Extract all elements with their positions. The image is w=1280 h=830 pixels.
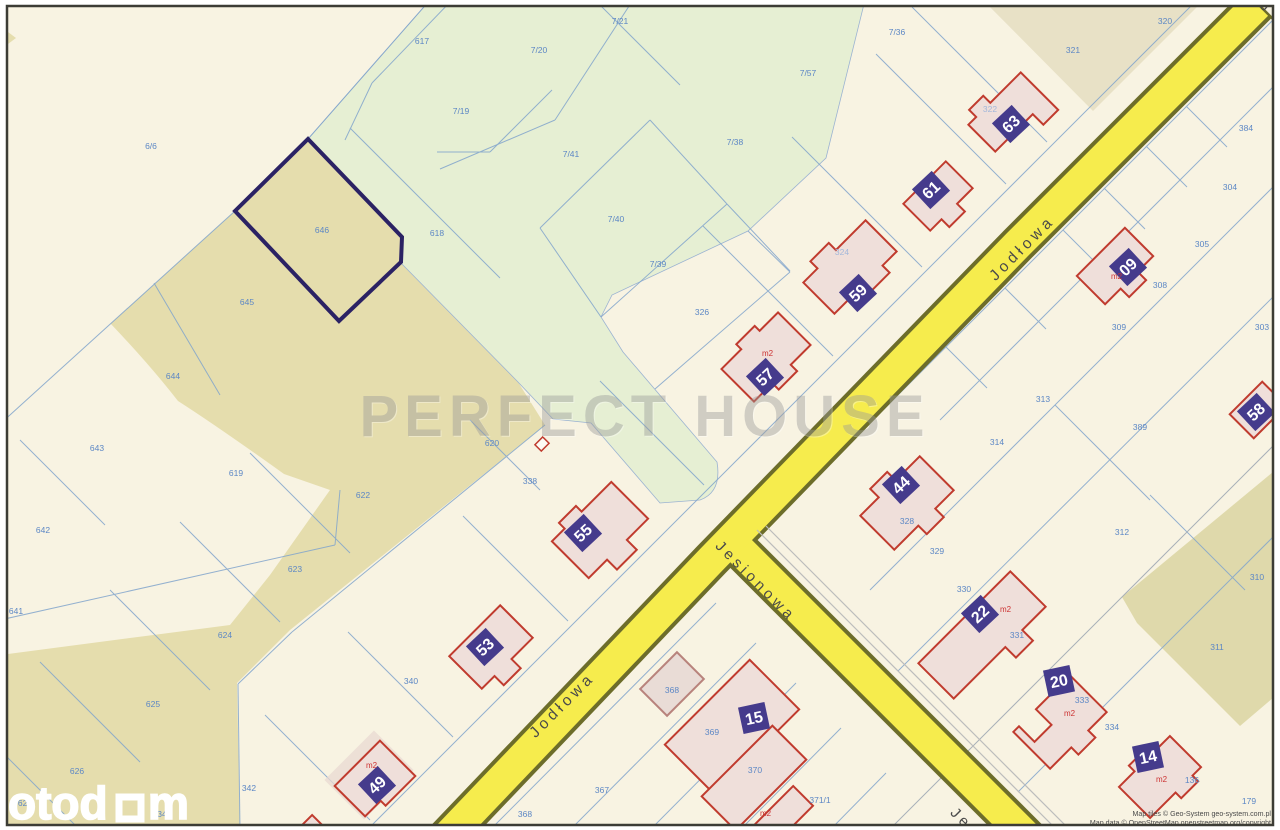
- svg-text:313: 313: [1036, 394, 1050, 404]
- svg-text:368: 368: [518, 809, 532, 819]
- svg-text:326: 326: [695, 307, 709, 317]
- svg-text:7/38: 7/38: [727, 137, 744, 147]
- svg-text:644: 644: [166, 371, 180, 381]
- svg-text:7/39: 7/39: [650, 259, 667, 269]
- svg-text:624: 624: [218, 630, 232, 640]
- svg-text:311: 311: [1210, 642, 1224, 652]
- svg-text:7/19: 7/19: [453, 106, 470, 116]
- svg-text:329: 329: [930, 546, 944, 556]
- svg-text:328: 328: [900, 516, 914, 526]
- svg-text:7/40: 7/40: [608, 214, 625, 224]
- svg-text:384: 384: [1239, 123, 1253, 133]
- svg-text:370: 370: [748, 765, 762, 775]
- svg-text:14: 14: [1138, 748, 1159, 768]
- svg-text:322: 322: [983, 104, 997, 114]
- svg-text:618: 618: [430, 228, 444, 238]
- svg-text:368: 368: [665, 685, 679, 695]
- svg-text:310: 310: [1250, 572, 1264, 582]
- svg-text:314: 314: [990, 437, 1004, 447]
- svg-text:m2: m2: [1064, 709, 1076, 718]
- svg-text:7/21: 7/21: [612, 16, 629, 26]
- svg-text:15: 15: [744, 709, 765, 729]
- svg-text:643: 643: [90, 443, 104, 453]
- svg-text:617: 617: [415, 36, 429, 46]
- svg-text:641: 641: [9, 606, 23, 616]
- svg-text:324: 324: [835, 247, 849, 257]
- svg-text:304: 304: [1223, 182, 1237, 192]
- svg-text:367: 367: [595, 785, 609, 795]
- svg-text:303: 303: [1255, 322, 1269, 332]
- svg-text:305: 305: [1195, 239, 1209, 249]
- svg-text:otod: otod: [8, 777, 108, 829]
- svg-text:179: 179: [1242, 796, 1256, 806]
- svg-text:642: 642: [36, 525, 50, 535]
- svg-text:7/20: 7/20: [531, 45, 548, 55]
- svg-text:331: 331: [1010, 630, 1024, 640]
- svg-text:330: 330: [957, 584, 971, 594]
- svg-text:312: 312: [1115, 527, 1129, 537]
- svg-text:645: 645: [240, 297, 254, 307]
- svg-text:m2: m2: [366, 761, 378, 770]
- svg-text:PERFECT HOUSE: PERFECT HOUSE: [359, 384, 930, 449]
- svg-text:7/41: 7/41: [563, 149, 580, 159]
- svg-text:338: 338: [523, 476, 537, 486]
- svg-text:646: 646: [315, 225, 329, 235]
- svg-text:340: 340: [404, 676, 418, 686]
- svg-text:389: 389: [1133, 422, 1147, 432]
- svg-text:622: 622: [356, 490, 370, 500]
- svg-text:7/36: 7/36: [889, 27, 906, 37]
- svg-text:308: 308: [1153, 280, 1167, 290]
- svg-text:369: 369: [705, 727, 719, 737]
- svg-text:m2: m2: [1000, 605, 1012, 614]
- svg-text:6/6: 6/6: [145, 141, 157, 151]
- svg-text:m2: m2: [762, 349, 774, 358]
- svg-text:m2: m2: [1156, 775, 1168, 784]
- svg-text:309: 309: [1112, 322, 1126, 332]
- svg-text:320: 320: [1158, 16, 1172, 26]
- svg-text:m2: m2: [1111, 272, 1123, 281]
- svg-text:371/1: 371/1: [809, 795, 831, 805]
- svg-text:623: 623: [288, 564, 302, 574]
- svg-text:321: 321: [1066, 45, 1080, 55]
- svg-text:342: 342: [242, 783, 256, 793]
- svg-text:619: 619: [229, 468, 243, 478]
- svg-text:626: 626: [70, 766, 84, 776]
- svg-text:333: 333: [1075, 695, 1089, 705]
- svg-text:m2: m2: [760, 809, 772, 818]
- svg-text:334: 334: [1105, 722, 1119, 732]
- svg-text:20: 20: [1049, 672, 1070, 692]
- svg-text:136: 136: [1185, 775, 1199, 785]
- svg-text:m: m: [148, 777, 189, 829]
- svg-text:Map tiles © Geo-System geo-sys: Map tiles © Geo-System geo-system.com.pl: [1133, 810, 1272, 818]
- svg-text:7/57: 7/57: [800, 68, 817, 78]
- svg-text:625: 625: [146, 699, 160, 709]
